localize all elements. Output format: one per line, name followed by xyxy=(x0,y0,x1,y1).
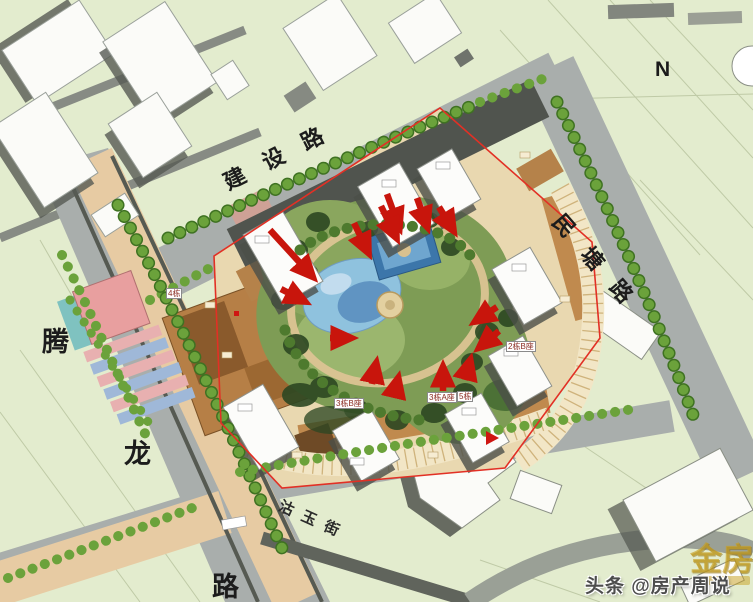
building-label-4: 4栋 xyxy=(166,288,182,299)
road-label-tenglong-char-1: 腾 xyxy=(42,320,69,359)
building-label-2B: 2栋B座 xyxy=(506,341,536,352)
road-label-tenglong-char-2: 龙 xyxy=(124,432,151,471)
building-label-5: 5栋 xyxy=(457,391,473,402)
road-label-tenglong-char-3: 路 xyxy=(212,565,239,602)
north-indicator: N xyxy=(655,58,670,82)
building-label-3B: 3栋B座 xyxy=(334,398,364,409)
site-plan: 建 设 路 民 塘 路 腾 龙 路 沽 玉 街 N 3栋B座 3栋A座 5栋 2… xyxy=(0,0,753,602)
site-plan-drawing xyxy=(0,0,753,602)
building-label-3A: 3栋A座 xyxy=(427,392,457,403)
toutiao-watermark: 头条 @房产周说 xyxy=(585,571,731,598)
